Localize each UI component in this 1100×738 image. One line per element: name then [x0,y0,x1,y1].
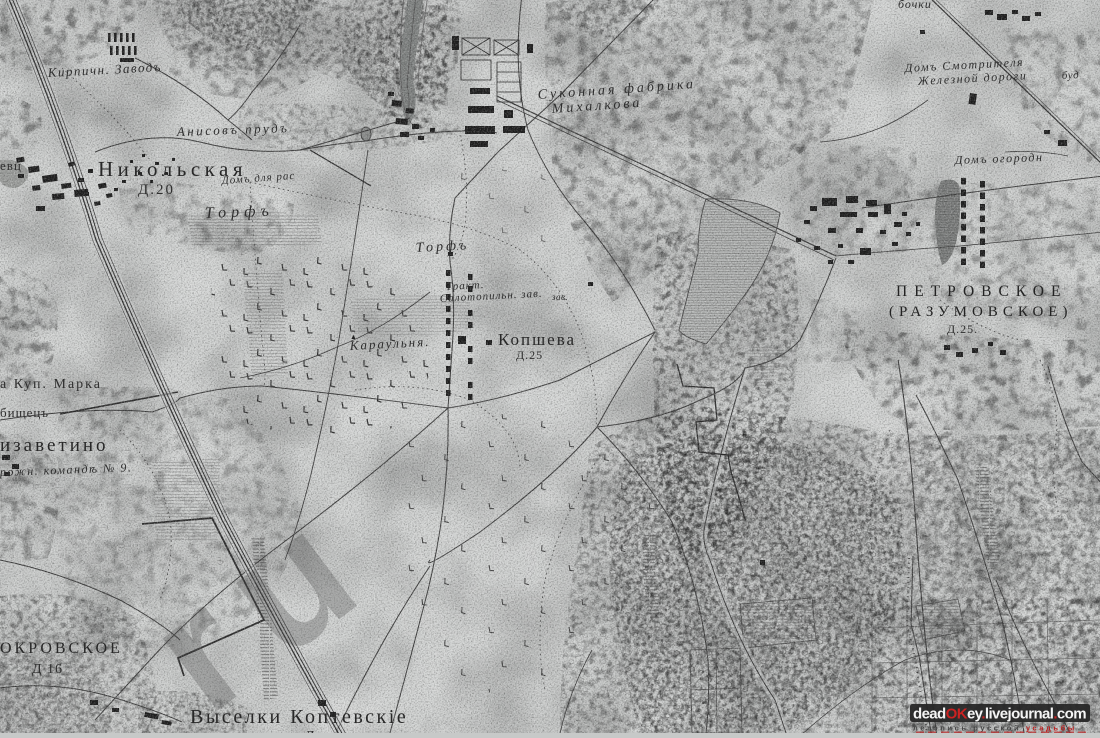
svg-text:бочки: бочки [898,0,932,11]
svg-text:ОКРОВСКОЕ: ОКРОВСКОЕ [0,640,123,657]
svg-text:Д.: Д. [305,729,320,733]
svg-text:Копшева: Копшева [498,330,576,349]
svg-text:бищецъ: бищецъ [0,405,49,420]
svg-text:евц: евц [0,158,22,173]
svg-text:буд: буд [1062,69,1080,82]
svg-text:Д.20: Д.20 [138,182,175,198]
svg-text:Д.25.: Д.25. [947,322,978,336]
svg-text:Торфъ: Торфъ [415,238,469,256]
svg-text:deadOKey.livejournal.com: deadOKey.livejournal.com [913,706,1086,723]
svg-text:▲: ▲ [350,333,357,341]
svg-text:зав.: зав. [551,292,568,302]
svg-text:а Куп. Марка: а Куп. Марка [0,377,102,392]
svg-text:(РАЗУМОВСКОЕ): (РАЗУМОВСКОЕ) [889,304,1072,320]
svg-text:Выселки Коптевскіе: Выселки Коптевскіе [190,706,408,728]
svg-text:изаветино: изаветино [0,435,109,456]
svg-text:ПЕТРОВСКОЕ: ПЕТРОВСКОЕ [896,283,1067,300]
svg-text:Д 16: Д 16 [32,662,63,677]
svg-text:Торфъ: Торфъ [205,203,275,222]
svg-text:Д.25: Д.25 [516,348,543,362]
svg-text:летопись русской усадьбы: летопись русской усадьбы [913,724,1077,733]
